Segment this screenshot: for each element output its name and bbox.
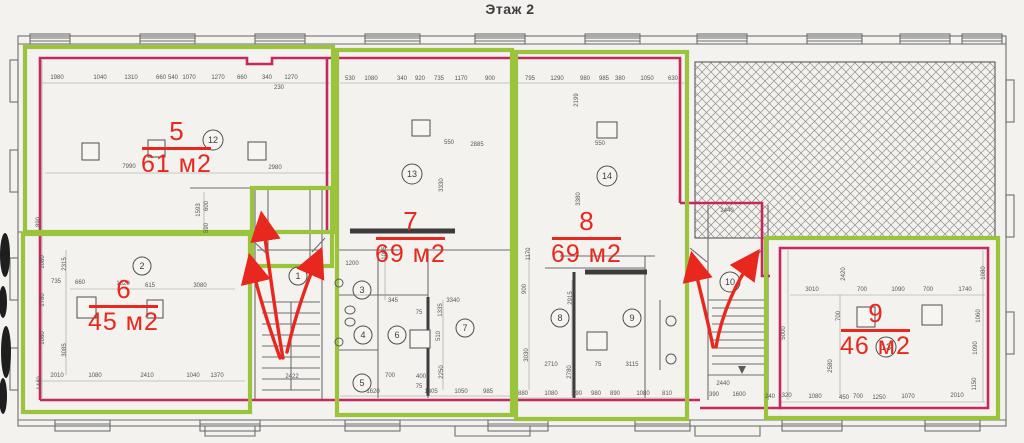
room-circle-number: 14 (602, 171, 612, 181)
apartment-7-number: 7 (376, 208, 444, 240)
dimension-text: 7990 (122, 164, 136, 170)
dimension-text: 795 (525, 76, 536, 82)
column-square (248, 142, 266, 160)
dimension-text: 1335 (438, 303, 444, 317)
apartment-label-9: 9 46 м2 (840, 300, 911, 359)
dimension-text: 1593 (196, 203, 202, 217)
dimension-text: 890 (36, 216, 42, 227)
room-circle-number: 6 (394, 330, 399, 340)
dimension-text: 2422 (285, 374, 299, 380)
dimension-text: 2010 (50, 373, 64, 379)
dimension-text: 3380 (576, 192, 582, 206)
dimension-text: 660 (156, 75, 167, 81)
dark-wall-verticals (428, 272, 574, 398)
dimension-text: 1305 (424, 389, 438, 395)
room-circle-number: 3 (359, 285, 364, 295)
column-square (587, 332, 607, 350)
dimension-text: 2315 (62, 257, 68, 271)
dimension-text: 240 (765, 394, 776, 400)
dimension-text: 1080 (808, 394, 822, 400)
dimension-text: 530 (345, 76, 356, 82)
dimension-text: 1090 (973, 341, 979, 355)
dimension-text: 810 (662, 391, 673, 397)
dimension-text: 1070 (901, 394, 915, 400)
room-circle-number: 13 (407, 169, 417, 179)
apartment-label-7: 7 69 м2 (375, 208, 446, 267)
dimension-text: 550 (595, 141, 606, 147)
dimension-text: 345 (388, 298, 399, 304)
dimension-text: 1740 (958, 287, 972, 293)
dimension-text: 1080 (88, 373, 102, 379)
dimension-text: 540 (168, 75, 179, 81)
dimension-text: 1090 (891, 287, 905, 293)
apartment-8-number: 8 (552, 208, 620, 240)
apartment-5-number: 5 (142, 118, 210, 150)
apartment-6-area: 45 м2 (88, 308, 159, 336)
dimension-text: 600 (204, 200, 210, 211)
dimension-text: 2780 (567, 365, 573, 379)
column-square (412, 120, 430, 136)
dimension-text: 1070 (182, 75, 196, 81)
dimension-text: 980 (591, 391, 602, 397)
dimension-text: 3030 (524, 348, 530, 362)
floor-plan-page: 1980104013106605401070127066034012702305… (0, 0, 1024, 443)
dimension-text: 3115 (626, 362, 640, 368)
dimension-text: 450 (839, 395, 850, 401)
apartment-7-area: 69 м2 (375, 240, 446, 268)
dimension-text: 980 (580, 76, 591, 82)
dimension-text: 3340 (446, 298, 460, 304)
dimension-text: 660 (75, 280, 86, 286)
dimension-text: 1080 (40, 331, 46, 345)
room-circle-number: 10 (725, 277, 735, 287)
room-circle-number: 8 (557, 313, 562, 323)
dimension-text: 550 (444, 140, 455, 146)
dimension-text: 1440 (37, 376, 43, 390)
dimension-text: 735 (434, 76, 445, 82)
dimension-text: 880 (518, 391, 529, 397)
dimension-text: 2885 (470, 142, 484, 148)
dimension-text: 1170 (526, 247, 532, 261)
dimension-text: 985 (599, 76, 610, 82)
dimension-text: 340 (262, 75, 273, 81)
column-square (410, 330, 430, 348)
dimension-text: 1080 (981, 266, 987, 280)
room-circle-number: 1 (295, 271, 300, 281)
dimension-text: 3080 (193, 283, 207, 289)
page-title: Этаж 2 (430, 1, 590, 17)
dimension-text: 2915 (568, 291, 574, 305)
dimension-text: 5000 (781, 326, 787, 340)
dimension-text: 1370 (210, 373, 224, 379)
red-exit-arrows (252, 224, 752, 358)
dimension-text: 75 (595, 362, 602, 368)
column-square (82, 143, 99, 160)
dimension-text: 920 (415, 76, 426, 82)
dimension-text: 590 (204, 222, 210, 233)
apartment-6-number: 6 (89, 276, 157, 308)
dimension-text: 700 (385, 373, 396, 379)
dimension-text: 400 (416, 374, 427, 380)
dimension-text: 1170 (455, 76, 469, 82)
stair-2 (690, 248, 768, 375)
dimension-text: 700 (853, 394, 864, 400)
apartment-5-area: 61 м2 (141, 150, 212, 178)
column-square (597, 122, 617, 138)
hatched-area (695, 62, 995, 238)
dimension-text: 2580 (828, 359, 834, 373)
dimension-text: 900 (485, 76, 496, 82)
dimension-text: 1200 (345, 261, 359, 267)
dimension-text: 900 (522, 283, 528, 294)
dimension-text: 1270 (211, 75, 225, 81)
stair-1 (250, 238, 325, 390)
room-circle-number: 4 (360, 330, 365, 340)
dimension-text: 1060 (976, 309, 982, 323)
dimension-text: 2010 (950, 393, 964, 399)
dimension-text: 2250 (439, 365, 445, 379)
stair-direction-arrow (738, 366, 746, 374)
dimension-text: 700 (857, 287, 868, 293)
dimension-text: 1270 (284, 75, 298, 81)
dimension-text: 985 (483, 389, 494, 395)
dimension-text: 1050 (640, 76, 654, 82)
dimension-text: 890 (610, 391, 621, 397)
dimension-text: 75 (416, 310, 423, 316)
apartment-9-area: 46 м2 (840, 332, 911, 360)
dimension-text: 1780 (40, 293, 46, 307)
dimension-text: 3010 (805, 287, 819, 293)
dimension-text: 75 (416, 384, 423, 390)
dimension-text: 510 (436, 330, 442, 341)
fixture-ellipse (345, 318, 355, 326)
dimension-text: 630 (668, 76, 679, 82)
column-square (922, 305, 942, 325)
dimension-text: 1080 (40, 255, 46, 269)
dimension-text: 3330 (439, 178, 445, 192)
dimension-text: 1290 (550, 76, 564, 82)
room-circle-number: 9 (629, 313, 634, 323)
stair2-arrow-left (694, 264, 713, 347)
fixture-ellipse (345, 306, 355, 314)
apartment-label-6: 6 45 м2 (88, 276, 159, 335)
dimension-text: 2420 (841, 267, 847, 281)
dimension-text: 2199 (574, 93, 580, 107)
dimension-text: 1600 (732, 392, 746, 398)
dimension-text: 340 (397, 76, 408, 82)
apartment-8-area: 69 м2 (551, 240, 622, 268)
dimension-text: 1080 (364, 76, 378, 82)
room-circle-number: 5 (359, 378, 364, 388)
dimension-text: 1050 (454, 389, 468, 395)
dimension-text: 2980 (268, 165, 282, 171)
apartment-9-number: 9 (841, 300, 909, 332)
dimension-text: 660 (237, 75, 248, 81)
dimension-text: 1040 (186, 373, 200, 379)
dimension-text: 1250 (872, 395, 886, 401)
dimension-text: 1310 (124, 75, 138, 81)
dimension-text: 1080 (636, 391, 650, 397)
dimension-text: 1980 (50, 75, 64, 81)
dimension-text: 2440 (716, 381, 730, 387)
dimension-text: 2440 (720, 208, 734, 214)
dimension-text: 2710 (544, 362, 558, 368)
dimension-text: 735 (51, 279, 62, 285)
scan-artifacts (0, 233, 11, 414)
dimension-text: 2410 (140, 373, 154, 379)
floor-plan-canvas: 1980104013106605401070127066034012702305… (0, 0, 1024, 443)
dimension-text: 700 (923, 287, 934, 293)
fixture-circle (666, 354, 676, 364)
dimension-text: 1150 (972, 377, 978, 391)
room-circle-number: 7 (462, 323, 467, 333)
dimension-text: 790 (572, 391, 583, 397)
dimension-text: 390 (709, 392, 720, 398)
dimension-text: 380 (615, 76, 626, 82)
dimension-text: 3085 (62, 343, 68, 357)
dimension-text: 1040 (93, 75, 107, 81)
dimension-text: 1080 (544, 391, 558, 397)
room-circle-number: 2 (139, 261, 144, 271)
dimension-text: 1320 (778, 393, 792, 399)
fixture-circle (666, 316, 676, 326)
dimension-text: 230 (274, 85, 285, 91)
apartment-label-8: 8 69 м2 (551, 208, 622, 267)
apartment-label-5: 5 61 м2 (141, 118, 212, 177)
